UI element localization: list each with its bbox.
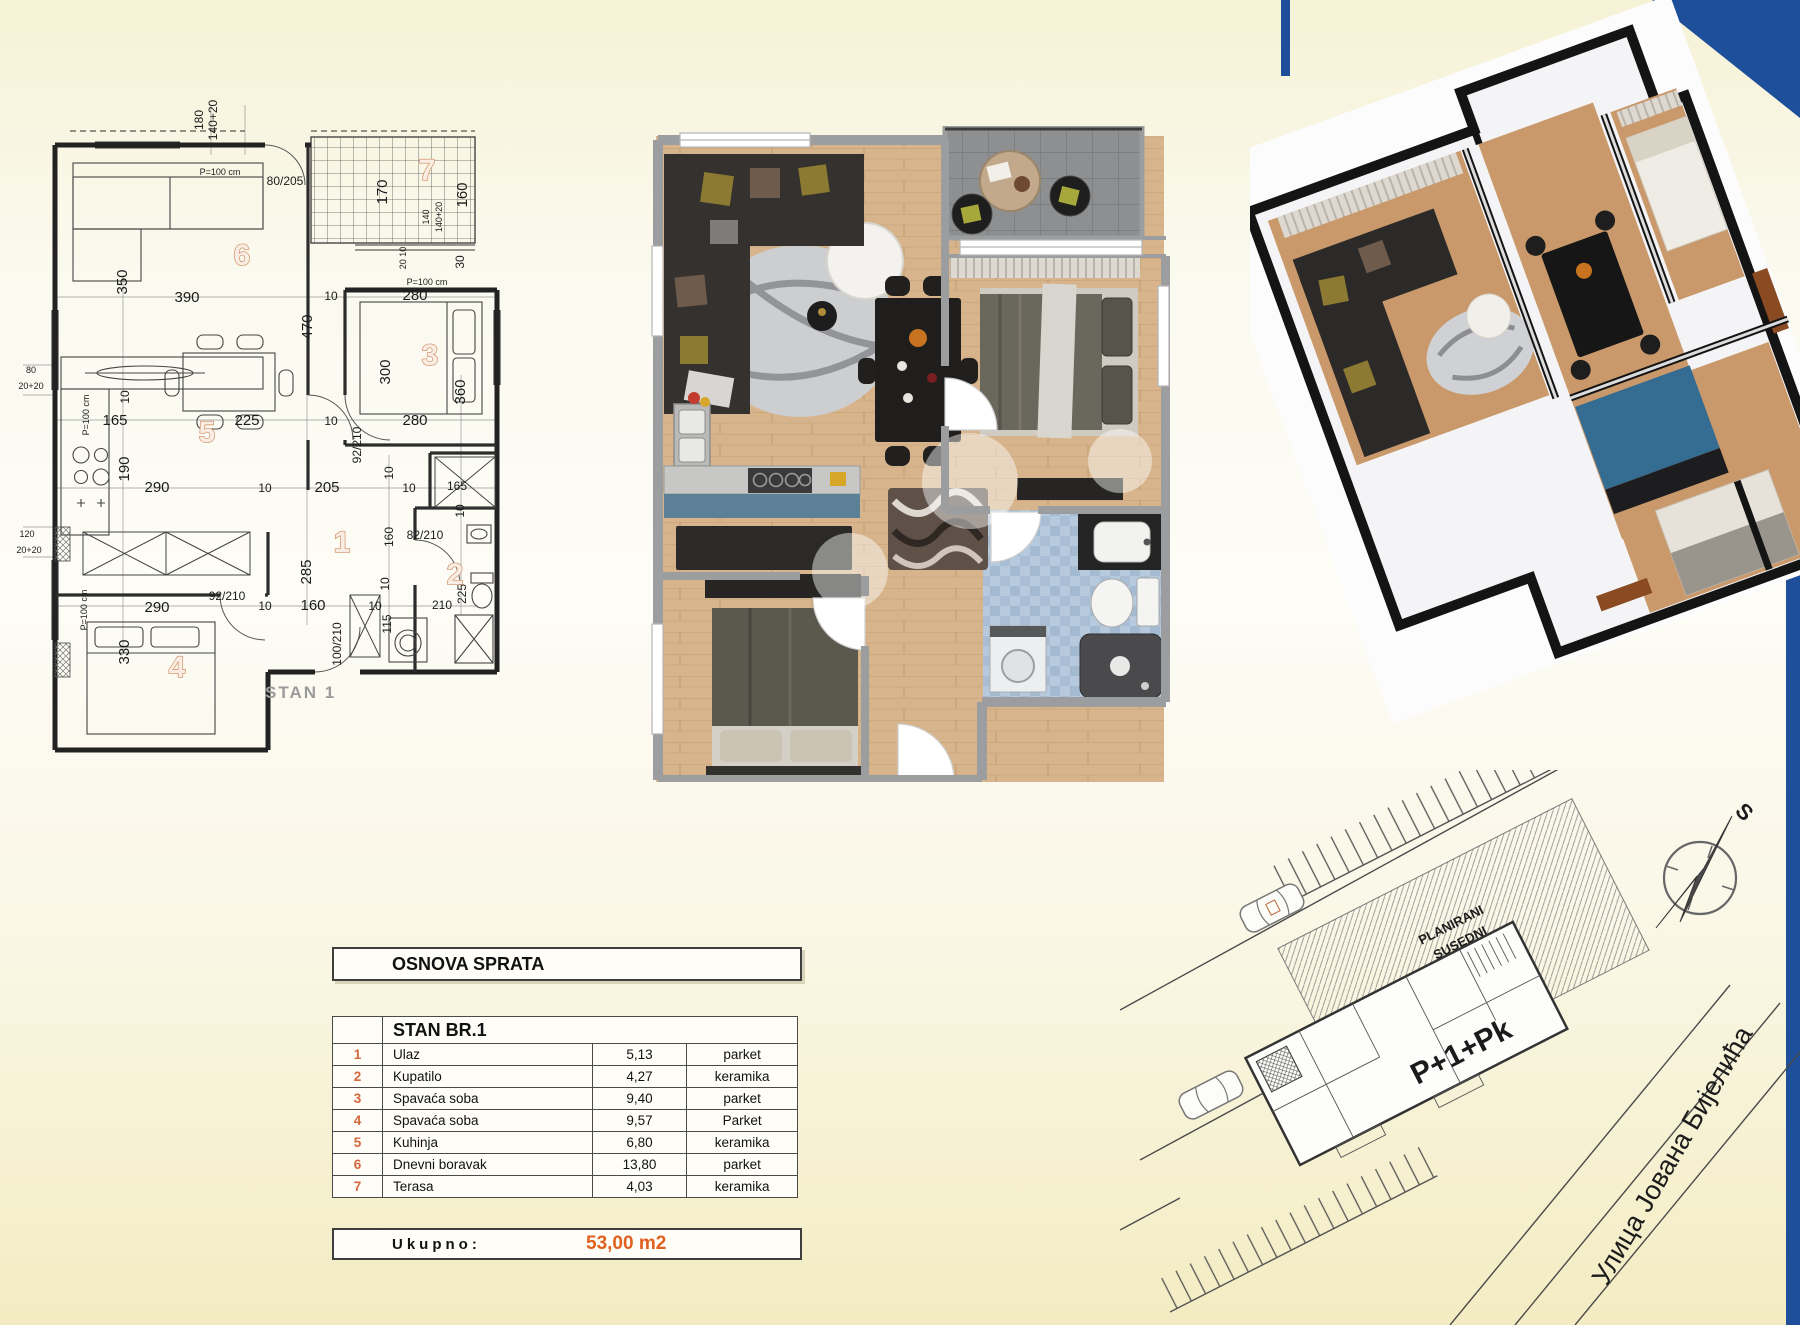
row-name: Kuhinja	[383, 1132, 593, 1154]
dim: 160	[300, 597, 325, 614]
stan-label: STAN 1	[265, 683, 336, 702]
row-floor: parket	[687, 1088, 798, 1110]
dim: 100/210	[330, 622, 344, 666]
row-floor: keramika	[687, 1176, 798, 1198]
dim: P=100 cm	[81, 395, 91, 436]
sofa	[664, 154, 864, 246]
dim: 165	[447, 479, 467, 493]
table-row: 6 Dnevni boravak 13,80 parket	[333, 1154, 798, 1176]
dim: 180	[192, 110, 206, 130]
dim: 115	[380, 614, 394, 633]
total-label: Ukupno:	[334, 1236, 481, 1253]
dim: 290	[144, 599, 169, 616]
dim: 10	[118, 390, 132, 404]
row-name: Ulaz	[383, 1044, 593, 1066]
dim: 30	[453, 255, 467, 269]
table-row: 4 Spavaća soba 9,57 Parket	[333, 1110, 798, 1132]
row-area: 13,80	[592, 1154, 686, 1176]
row-floor: keramika	[687, 1132, 798, 1154]
row-area: 6,80	[592, 1132, 686, 1154]
dim: 20 10	[398, 247, 408, 270]
table-row: 7 Terasa 4,03 keramika	[333, 1176, 798, 1198]
room-number-2: 2	[447, 558, 464, 591]
dim: 280	[402, 287, 427, 304]
dim: 140+20	[434, 202, 444, 232]
dim: 10	[324, 414, 338, 428]
compass-needle	[1656, 816, 1732, 928]
parking-row-bottom	[1155, 1146, 1438, 1312]
row-name: Terasa	[383, 1176, 593, 1198]
dim: 390	[174, 289, 199, 306]
dim: 160	[454, 182, 471, 207]
table-row: 2 Kupatilo 4,27 keramika	[333, 1066, 798, 1088]
room-number-7: 7	[419, 154, 436, 187]
dim: 80/205	[267, 174, 304, 188]
row-area: 5,13	[592, 1044, 686, 1066]
row-area: 4,03	[592, 1176, 686, 1198]
row-area: 9,57	[592, 1110, 686, 1132]
dim: 205	[314, 479, 339, 496]
terrace-grid	[311, 137, 475, 243]
room-number-3: 3	[422, 339, 439, 372]
row-floor: Parket	[687, 1110, 798, 1132]
dim: 280	[402, 412, 427, 429]
dim: 160	[382, 527, 396, 547]
wall-pier	[55, 643, 70, 677]
table-row: 3 Spavaća soba 9,40 parket	[333, 1088, 798, 1110]
dim: 190	[116, 456, 133, 481]
technical-floor-plan: 180 140+20 P=100 cm 80/205 170 160 140 1…	[15, 95, 565, 760]
row-area: 9,40	[592, 1088, 686, 1110]
table-header-row: STAN BR.1	[333, 1017, 798, 1044]
dim: 225	[234, 412, 259, 429]
street-name: Улица Јована Бијелића	[1586, 1020, 1759, 1290]
unit-title: STAN BR.1	[383, 1017, 798, 1044]
sheet-title: OSNOVA SPRATA	[334, 954, 544, 975]
dim: 10	[382, 466, 396, 480]
row-name: Spavaća soba	[383, 1110, 593, 1132]
dim: 10	[258, 481, 272, 495]
row-area: 4,27	[592, 1066, 686, 1088]
floorplan-sheet: 180 140+20 P=100 cm 80/205 170 160 140 1…	[0, 0, 1800, 1325]
area-table: STAN BR.1 1 Ulaz 5,13 parket 2 Kupatilo …	[332, 1016, 798, 1198]
dim: P=100 cm	[79, 590, 89, 631]
room-number-6: 6	[234, 239, 251, 272]
dim: 350	[114, 269, 131, 294]
dim: 290	[144, 479, 169, 496]
dim: 210	[432, 598, 452, 612]
compass: S	[1656, 798, 1759, 928]
dining-symbol	[165, 335, 293, 429]
dim: 92/210	[350, 426, 364, 463]
wall-pier	[55, 527, 70, 561]
render-3d-view	[1250, 0, 1800, 800]
row-name: Kupatilo	[383, 1066, 593, 1088]
bed-room4	[87, 622, 215, 734]
sheet-title-box: OSNOVA SPRATA	[332, 947, 802, 981]
row-num: 6	[333, 1154, 383, 1176]
room-number-1: 1	[334, 526, 351, 559]
row-name: Dnevni boravak	[383, 1154, 593, 1176]
dim: 10	[453, 504, 467, 518]
dim: 165	[102, 412, 127, 429]
room-number-4: 4	[169, 651, 186, 684]
row-num: 3	[333, 1088, 383, 1110]
site-plan: PLANIRANI SUSEDNI OBJEKAT P+1+Pk P+1+Pk	[1120, 770, 1800, 1325]
dim: 82/210	[407, 528, 444, 542]
dim: 285	[298, 559, 315, 584]
dim: 330	[116, 639, 133, 664]
render-3d-apartment	[1250, 0, 1800, 724]
row-num: 1	[333, 1044, 383, 1066]
dim: 92/210	[209, 589, 246, 603]
compass-label: S	[1730, 798, 1758, 826]
dim: 10	[378, 577, 392, 591]
total-value: 53,00 m2	[586, 1233, 666, 1255]
row-num: 4	[333, 1110, 383, 1132]
row-floor: parket	[687, 1154, 798, 1176]
dim: 20+20	[18, 381, 43, 391]
dim: 360	[452, 379, 469, 404]
row-floor: keramika	[687, 1066, 798, 1088]
dim: 170	[374, 179, 391, 204]
dim: 10	[402, 481, 416, 495]
row-num: 2	[333, 1066, 383, 1088]
kitchen-symbols	[61, 357, 263, 535]
decor	[818, 308, 826, 316]
room-number-5: 5	[199, 416, 216, 449]
dim: 10	[258, 599, 272, 613]
table-row: 5 Kuhinja 6,80 keramika	[333, 1132, 798, 1154]
row-floor: parket	[687, 1044, 798, 1066]
dim: 470	[299, 314, 316, 339]
rendered-floor-plan	[650, 126, 1170, 782]
bathroom-symbols	[389, 525, 493, 663]
dim: 140	[421, 209, 431, 224]
row-num: 7	[333, 1176, 383, 1198]
dim: 120	[19, 529, 34, 539]
table-row: 1 Ulaz 5,13 parket	[333, 1044, 798, 1066]
row-name: Spavaća soba	[383, 1088, 593, 1110]
row-num: 5	[333, 1132, 383, 1154]
total-box: Ukupno: 53,00 m2	[332, 1228, 802, 1260]
dim: 300	[377, 359, 394, 384]
dim: 80	[26, 365, 36, 375]
car-1	[1176, 1068, 1246, 1122]
dim: P=100 cm	[407, 277, 448, 287]
dim: 140+20	[206, 99, 220, 140]
dim: 10	[368, 599, 382, 613]
dim: 10	[324, 289, 338, 303]
dim: P=100 cm	[200, 167, 241, 177]
dim: 20+20	[16, 545, 41, 555]
kitchen-blue-front	[664, 494, 860, 518]
